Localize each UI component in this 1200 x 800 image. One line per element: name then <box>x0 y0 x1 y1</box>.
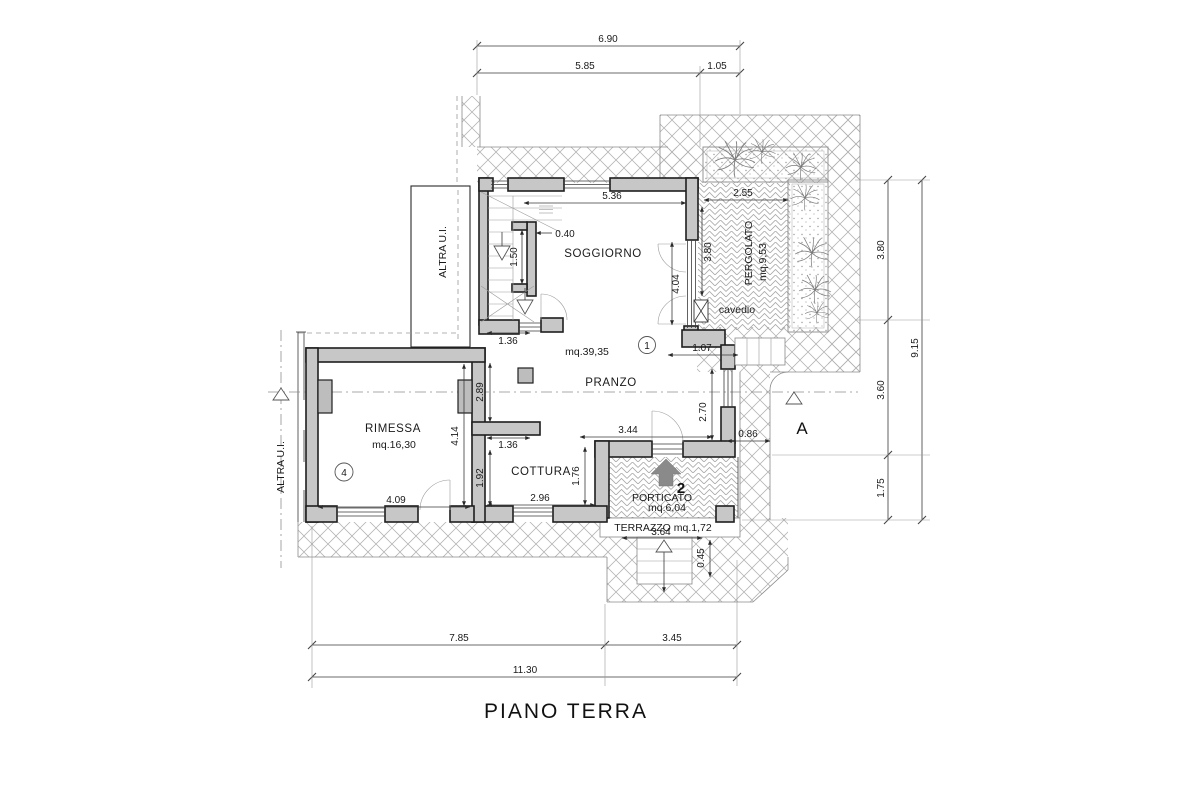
dim-stair-wall: 1.50 <box>509 247 520 267</box>
dim-soggiorno-h: 4.04 <box>671 274 682 294</box>
dim-cottura-w: 2.96 <box>530 493 550 504</box>
dim-right-b: 3.60 <box>876 380 887 400</box>
room-label-rimessa: RIMESSA <box>365 423 421 435</box>
room-label-cavedio: cavedio <box>719 304 755 316</box>
dim-soggiorno-w: 5.36 <box>602 191 622 202</box>
dim-step-w: 0.86 <box>738 429 758 440</box>
dim-top-a: 5.85 <box>575 61 595 72</box>
dim-bottom-b: 3.45 <box>662 633 682 644</box>
dim-porticato-h: 1.76 <box>571 466 582 486</box>
section-letter: A <box>796 419 808 438</box>
entrance-number-2: 2 <box>677 480 685 497</box>
dim-rimessa-w: 4.09 <box>386 495 406 506</box>
dim-step-side: 2.70 <box>698 402 709 422</box>
dim-bottom-a: 7.85 <box>449 633 469 644</box>
dim-stair-door: 1.36 <box>498 336 518 347</box>
page-title: PIANO TERRA <box>484 700 648 723</box>
dim-top-b: 1.05 <box>707 61 727 72</box>
exterior-steps-east <box>735 338 785 365</box>
room-area-rimessa: mq.16,30 <box>372 439 416 451</box>
dim-right-c: 1.75 <box>876 478 887 498</box>
pilaster <box>318 380 332 413</box>
ref-number-4: 4 <box>341 468 347 479</box>
pillar <box>716 506 734 522</box>
floor-plan-canvas: 6.90 5.85 1.05 3.80 3.60 1.75 9.15 7.85 … <box>0 0 1200 800</box>
dim-step-top: 1.07 <box>692 343 712 354</box>
dim-bottom-total: 11.30 <box>513 665 538 676</box>
label-altra-ui-left: ALTRA U.I. <box>275 441 287 493</box>
ref-number-1: 1 <box>644 341 650 352</box>
column <box>518 368 533 383</box>
dim-pranzo-door: 3.44 <box>618 425 638 436</box>
dim-step-h: 0.45 <box>696 548 707 568</box>
dim-cottura-wall: 1.92 <box>475 468 486 488</box>
room-label-pranzo: PRANZO <box>585 377 637 389</box>
page-background <box>0 0 1200 800</box>
dim-pergolato-w: 2.55 <box>733 188 753 199</box>
dim-right-a: 3.80 <box>876 240 887 260</box>
dim-right-total: 9.15 <box>910 338 921 358</box>
pilaster <box>458 380 472 413</box>
room-label-cottura: COTTURA <box>511 466 571 478</box>
dim-pranzo-wall: 2.89 <box>475 382 486 402</box>
room-area-pergolato: mq.9,53 <box>757 243 769 281</box>
dim-stair-niche: 0.40 <box>555 229 575 240</box>
dim-top-total: 6.90 <box>598 34 618 45</box>
room-label-terrazzo: TERRAZZO mq.1,72 <box>614 522 712 534</box>
dim-cottura-pass: 1.36 <box>498 440 518 451</box>
exterior-steps-south <box>637 537 692 592</box>
room-label-soggiorno: SOGGIORNO <box>564 248 642 260</box>
dim-rimessa-h: 4.14 <box>450 426 461 446</box>
dim-pergolato-h: 3.80 <box>703 242 714 262</box>
room-area-pranzo: mq.39,35 <box>565 346 609 358</box>
room-area-porticato: mq.6,04 <box>648 502 686 514</box>
label-altra-ui-top: ALTRA U.I. <box>437 226 449 278</box>
room-label-pergolato: PERGOLATO <box>743 221 755 285</box>
